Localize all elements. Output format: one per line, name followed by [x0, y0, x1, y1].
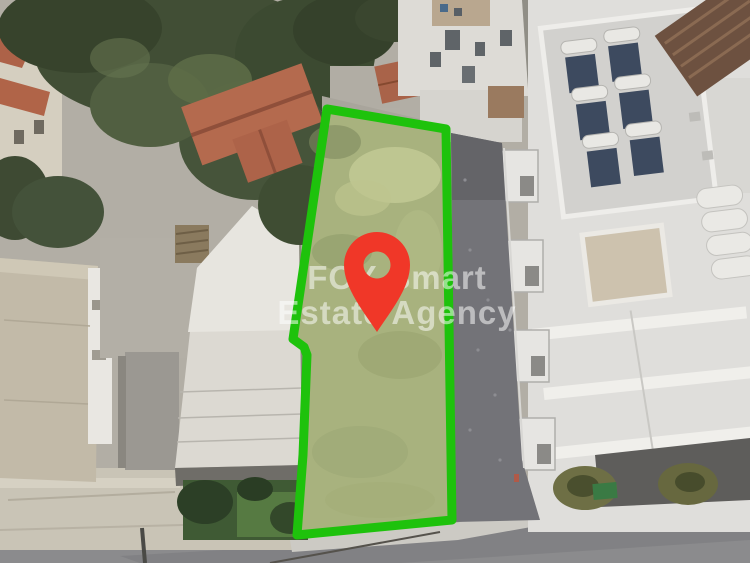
beige-building-left [0, 258, 112, 482]
garden-bottom-left [177, 477, 310, 540]
tiled-terrace [582, 225, 670, 304]
aerial-photo: FOX Smart Estate Agency [0, 0, 750, 563]
pedestrian [514, 474, 519, 482]
